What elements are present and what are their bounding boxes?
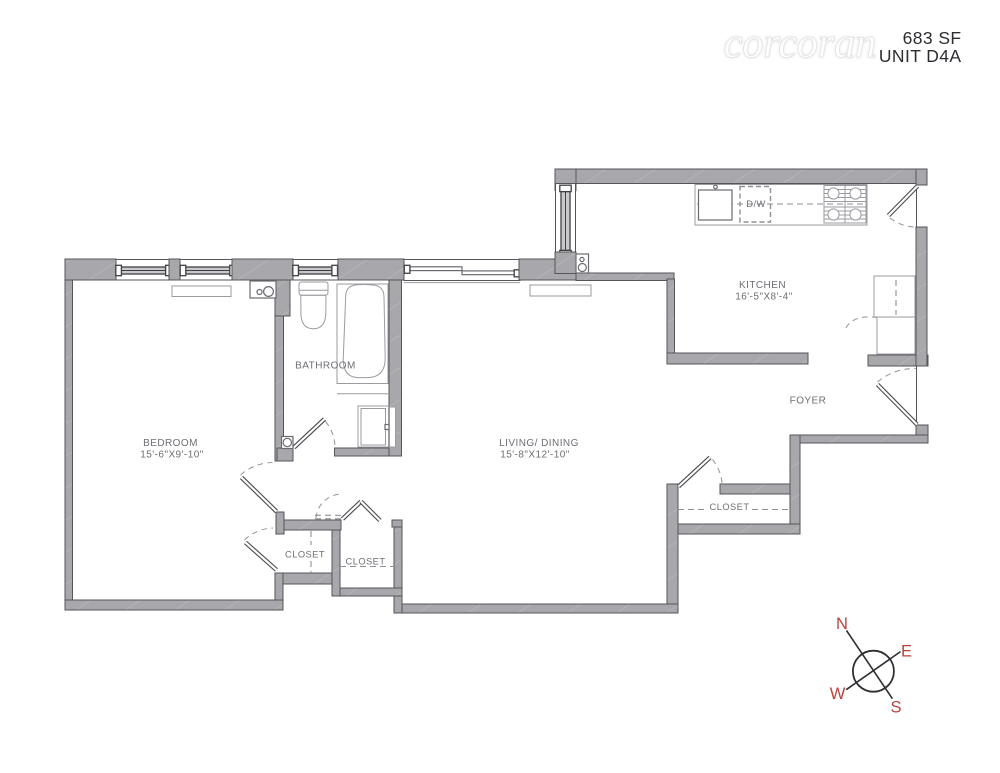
svg-text:15'-6"X9'-10": 15'-6"X9'-10"	[140, 450, 203, 461]
svg-text:BATHROOM: BATHROOM	[295, 361, 356, 372]
svg-text:CLOSET: CLOSET	[710, 502, 750, 512]
svg-text:S: S	[890, 699, 901, 717]
svg-text:W: W	[830, 685, 846, 703]
svg-text:D/W: D/W	[746, 199, 765, 209]
svg-text:CLOSET: CLOSET	[346, 557, 386, 567]
svg-text:UNIT D4A: UNIT D4A	[879, 46, 962, 66]
svg-text:E: E	[901, 643, 912, 661]
svg-text:LIVING/ DINING: LIVING/ DINING	[499, 438, 579, 449]
svg-text:BEDROOM: BEDROOM	[143, 438, 198, 449]
svg-text:corcoran: corcoran	[724, 21, 876, 67]
svg-text:N: N	[836, 615, 848, 633]
svg-text:683 SF: 683 SF	[903, 28, 962, 48]
svg-text:KITCHEN: KITCHEN	[739, 280, 786, 291]
svg-text:CLOSET: CLOSET	[285, 550, 325, 560]
svg-text:FOYER: FOYER	[790, 396, 827, 407]
svg-text:16'-5"X8'-4": 16'-5"X8'-4"	[735, 292, 792, 303]
svg-text:15'-8"X12'-10": 15'-8"X12'-10"	[500, 450, 569, 461]
